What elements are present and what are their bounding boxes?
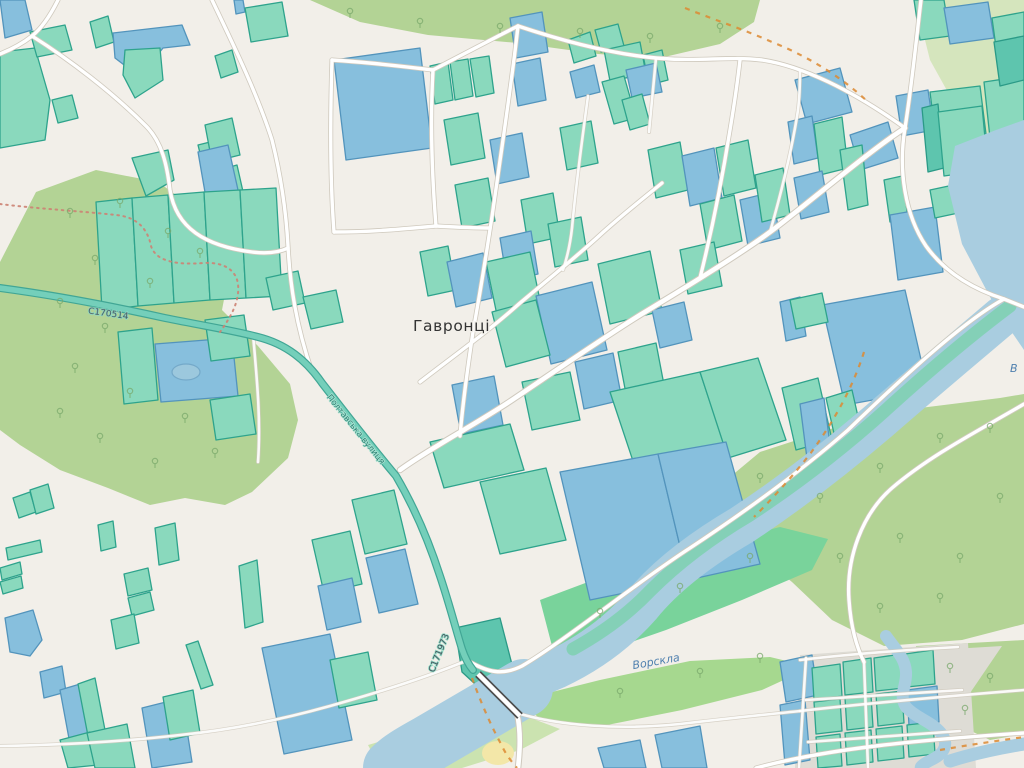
map-viewport[interactable]: Гавронці Ворскла В С170514 С171973 Полта…	[0, 0, 1024, 768]
river-label-partial: В	[1010, 362, 1018, 375]
sand-area	[482, 741, 514, 765]
map-canvas[interactable]: Гавронці Ворскла В С170514 С171973 Полта…	[0, 0, 1024, 768]
pond	[172, 364, 200, 380]
place-label: Гавронці	[413, 317, 490, 335]
